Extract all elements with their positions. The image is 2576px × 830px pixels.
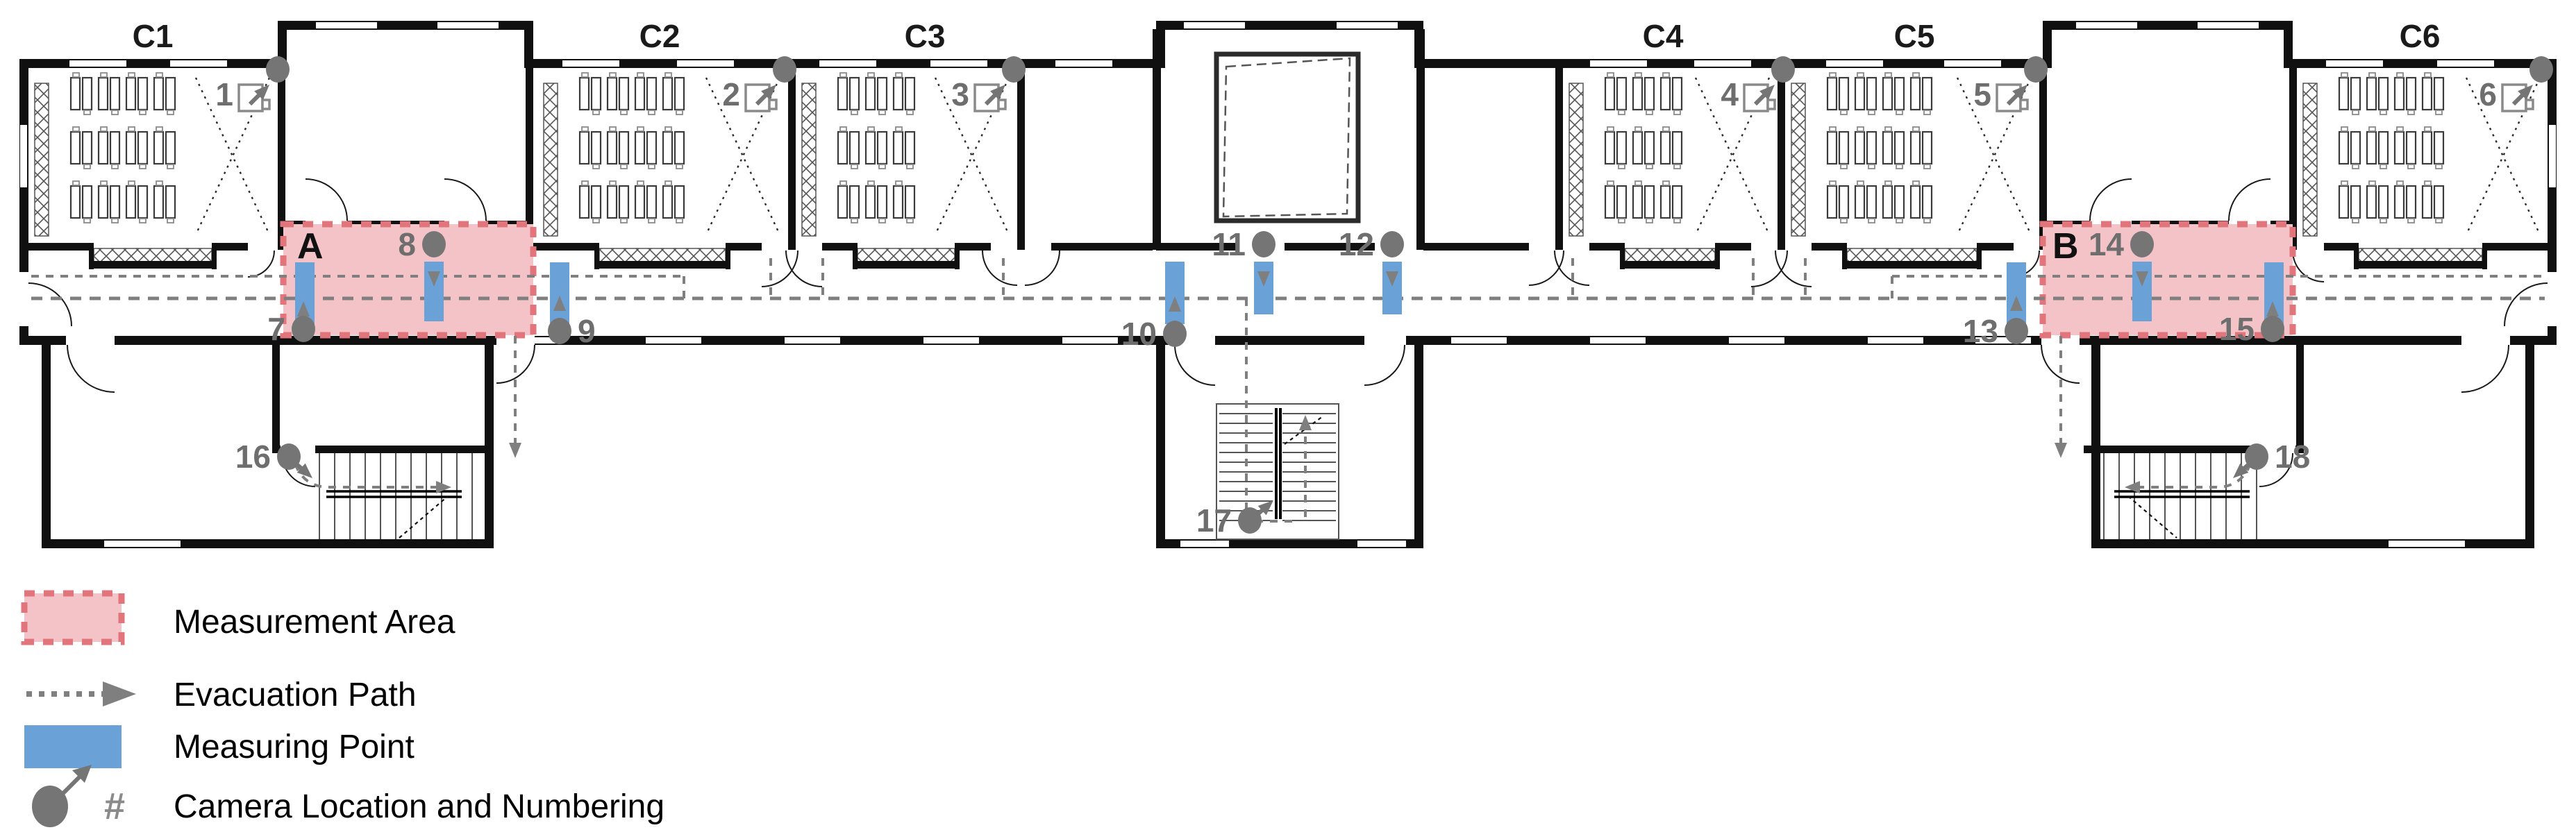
wall-segment xyxy=(1842,243,1847,269)
window xyxy=(19,272,28,326)
desk xyxy=(71,127,92,169)
desk xyxy=(2423,127,2443,169)
window xyxy=(1451,337,1507,344)
camera-location-icon xyxy=(2130,231,2154,257)
wall-segment xyxy=(89,243,94,269)
window xyxy=(1184,22,1245,28)
wall-segment xyxy=(485,336,494,548)
wall-segment xyxy=(1778,59,1785,250)
wall-segment xyxy=(1423,243,1529,251)
window xyxy=(1062,337,1118,344)
desk xyxy=(2395,127,2416,169)
wall-segment xyxy=(726,243,762,251)
wall-segment xyxy=(2359,248,2482,262)
desk xyxy=(126,73,147,115)
wall-segment xyxy=(1051,243,1153,251)
desk xyxy=(2339,73,2360,115)
desk xyxy=(1633,181,1654,223)
wall-segment xyxy=(1555,59,1563,250)
camera-marker-11: 11 xyxy=(1212,226,1276,314)
measurement-area-b xyxy=(2043,224,2293,335)
camera-location-icon xyxy=(266,56,290,83)
camera-location-icon xyxy=(1002,56,1026,83)
desk xyxy=(608,127,628,169)
exit-sign-tab-icon xyxy=(769,100,776,109)
desk xyxy=(154,181,175,223)
wall-segment xyxy=(2091,539,2534,548)
door-arc xyxy=(1175,345,1215,385)
wall-segment xyxy=(2296,345,2304,449)
window xyxy=(1590,337,1646,344)
camera-number: 9 xyxy=(578,313,596,349)
wall-segment xyxy=(2525,336,2534,548)
wall-segment xyxy=(594,243,599,269)
wall-segment xyxy=(19,243,94,251)
desk xyxy=(126,127,147,169)
wall-segment xyxy=(853,243,858,269)
window xyxy=(2548,272,2557,326)
wall-segment xyxy=(858,261,955,269)
legend-camera-location-label: Camera Location and Numbering xyxy=(174,788,664,825)
wall-segment xyxy=(1791,83,1805,236)
camera-number: 3 xyxy=(951,76,969,112)
door-arc xyxy=(2229,179,2270,221)
classroom-label-c5: C5 xyxy=(1894,18,1935,54)
wall-segment xyxy=(2354,243,2359,269)
desk xyxy=(1883,127,1904,169)
line xyxy=(2128,496,2177,538)
door-arc xyxy=(982,251,1017,285)
desk xyxy=(1855,181,1876,223)
wall-segment xyxy=(1847,261,1977,269)
desk xyxy=(71,73,92,115)
wall-segment xyxy=(1156,336,1165,548)
generated-plan-geometry: 123456789101112131415161718 xyxy=(19,21,2557,548)
desk xyxy=(1605,127,1626,169)
camera-location-icon xyxy=(2024,56,2048,83)
camera-location-icon xyxy=(548,318,571,344)
door-arc xyxy=(2090,179,2132,221)
wall-segment xyxy=(1812,243,1847,251)
desk xyxy=(608,73,628,115)
desk xyxy=(894,73,914,115)
wall-segment xyxy=(1414,336,1423,548)
wall-segment xyxy=(35,83,49,236)
wall-segment xyxy=(2091,336,2100,548)
desk xyxy=(1605,73,1626,115)
camera-location-icon xyxy=(2261,316,2284,342)
wall-segment xyxy=(822,243,858,251)
wall-segment xyxy=(599,261,726,269)
desk xyxy=(126,181,147,223)
wall-segment xyxy=(1977,243,2014,251)
desk xyxy=(71,181,92,223)
window xyxy=(2198,22,2259,28)
camera-location-icon xyxy=(2529,56,2553,83)
camera-number: 14 xyxy=(2089,226,2125,262)
desk xyxy=(99,73,119,115)
camera-number: 11 xyxy=(1212,226,1246,262)
wall-segment xyxy=(1569,83,1583,236)
measuring-point-bar xyxy=(550,262,569,323)
wall-segment xyxy=(1017,59,1025,250)
window xyxy=(1337,22,1398,28)
window xyxy=(562,60,619,67)
window xyxy=(1868,337,1923,344)
window xyxy=(69,60,126,67)
wall-segment xyxy=(2359,261,2482,269)
desk xyxy=(580,127,601,169)
wall-segment xyxy=(955,243,991,251)
camera-number: 6 xyxy=(2479,76,2497,112)
desk xyxy=(99,181,119,223)
window xyxy=(2461,336,2510,345)
camera-marker-12: 12 xyxy=(1339,226,1404,314)
area-label-a: A xyxy=(297,226,324,266)
door-arc xyxy=(762,251,798,287)
classroom-label-c4: C4 xyxy=(1643,18,1684,54)
desk xyxy=(1911,127,1932,169)
camera-location-icon xyxy=(1252,231,1276,257)
wall-segment xyxy=(212,243,248,251)
door-arc xyxy=(1025,251,1060,285)
desk xyxy=(1661,73,1682,115)
window xyxy=(2437,60,2494,67)
camera-location-icon xyxy=(1771,56,1795,83)
wall-segment xyxy=(42,336,51,548)
desk xyxy=(154,127,175,169)
door-arc xyxy=(1364,345,1405,385)
window xyxy=(1055,60,1112,67)
desk xyxy=(1633,127,1654,169)
door-arc xyxy=(786,251,822,287)
camera-number: 12 xyxy=(1339,226,1374,262)
camera-number: 7 xyxy=(267,311,285,347)
desk xyxy=(1828,181,1848,223)
camera-marker-18: 18 xyxy=(2233,439,2310,478)
window xyxy=(2549,125,2556,187)
classroom-label-c2: C2 xyxy=(639,18,680,54)
measuring-point-bar xyxy=(1165,262,1185,324)
camera-location-icon xyxy=(1163,321,1187,347)
camera-number: 18 xyxy=(2275,439,2310,475)
desk xyxy=(838,73,859,115)
wall-segment xyxy=(1416,29,1425,250)
wall-segment xyxy=(1625,261,1715,269)
wall-segment xyxy=(788,59,796,250)
desk xyxy=(99,127,119,169)
desk xyxy=(866,181,887,223)
door-arc xyxy=(28,283,72,326)
desk xyxy=(2339,181,2360,223)
wall-segment xyxy=(94,261,212,269)
floor-plan-svg: 123456789101112131415161718 C1 C2 C3 C4 … xyxy=(0,0,2576,830)
wall-segment xyxy=(1275,408,1278,519)
door-arc xyxy=(306,179,347,221)
desk xyxy=(1911,181,1932,223)
wall-segment xyxy=(533,243,599,251)
measuring-point-bar xyxy=(1254,262,1273,314)
desk xyxy=(2339,127,2360,169)
window xyxy=(437,22,499,28)
window xyxy=(2389,541,2465,547)
window xyxy=(104,541,181,547)
wall-segment xyxy=(1620,243,1625,269)
desk xyxy=(663,73,684,115)
wall-segment xyxy=(19,59,286,68)
exit-sign-tab-icon xyxy=(262,100,269,109)
camera-location-icon xyxy=(422,231,446,257)
desk xyxy=(635,181,656,223)
desk xyxy=(2367,181,2388,223)
legend-measurement-area-swatch xyxy=(24,593,122,642)
camera-location-icon xyxy=(2245,443,2268,470)
arrowhead-icon xyxy=(2055,443,2067,458)
wall-segment xyxy=(1847,248,1977,262)
desk xyxy=(838,127,859,169)
legend-measuring-point-swatch xyxy=(24,725,122,768)
desk xyxy=(608,181,628,223)
window xyxy=(1357,541,1406,547)
desk xyxy=(580,181,601,223)
exit-sign-tab-icon xyxy=(2021,100,2027,109)
desk xyxy=(2423,73,2443,115)
window xyxy=(2076,22,2137,28)
window xyxy=(923,337,979,344)
door-arc xyxy=(67,345,115,392)
window xyxy=(1694,60,1751,67)
desk xyxy=(1855,127,1876,169)
camera-number: 16 xyxy=(235,439,271,475)
measuring-point-bar xyxy=(2132,262,2152,321)
measuring-point-bar xyxy=(2007,262,2026,323)
desk xyxy=(580,73,601,115)
door-arc xyxy=(444,179,486,221)
exit-sign-tab-icon xyxy=(998,100,1005,109)
camera-number: 8 xyxy=(398,226,416,262)
legend-measuring-point-label: Measuring Point xyxy=(174,729,415,765)
desk xyxy=(1633,73,1654,115)
camera-location-icon xyxy=(292,316,315,342)
desk xyxy=(1883,73,1904,115)
wall-segment xyxy=(858,248,955,262)
window xyxy=(2326,60,2383,67)
camera-marker-10: 10 xyxy=(1121,262,1187,352)
window xyxy=(1729,337,1784,344)
window xyxy=(20,125,27,187)
legend-evacuation-path-label: Evacuation Path xyxy=(174,677,417,713)
wall-segment xyxy=(2324,243,2359,251)
window xyxy=(170,60,227,67)
camera-location-icon xyxy=(1238,507,1262,534)
camera-marker-17: 17 xyxy=(1196,500,1273,539)
wall-segment xyxy=(1589,243,1625,251)
desk xyxy=(1855,73,1876,115)
classroom-label-c3: C3 xyxy=(905,18,946,54)
camera-number: 17 xyxy=(1196,502,1232,539)
wall-segment xyxy=(94,248,212,262)
desk xyxy=(2367,127,2388,169)
window xyxy=(1826,60,1883,67)
wall-segment xyxy=(2482,243,2557,251)
desk xyxy=(1661,127,1682,169)
desk xyxy=(635,127,656,169)
desk xyxy=(635,73,656,115)
door-arc xyxy=(1775,251,1812,287)
desk xyxy=(2395,73,2416,115)
desk xyxy=(838,181,859,223)
camera-number: 5 xyxy=(1973,76,1991,112)
exit-sign-tab-icon xyxy=(1768,100,1775,109)
classroom-label-c1: C1 xyxy=(133,18,174,54)
wall-segment xyxy=(1715,243,1751,251)
camera-number: 13 xyxy=(1963,313,1998,349)
window xyxy=(1364,336,1406,345)
window xyxy=(316,22,377,28)
camera-number: 2 xyxy=(722,76,740,112)
camera-number: 10 xyxy=(1121,316,1157,352)
window xyxy=(646,337,701,344)
desk xyxy=(1828,73,1848,115)
desk xyxy=(663,181,684,223)
desk xyxy=(2367,73,2388,115)
measuring-point-bar xyxy=(424,262,444,321)
line xyxy=(399,496,448,538)
desk xyxy=(894,181,914,223)
window xyxy=(1180,541,1229,547)
desk xyxy=(1605,181,1626,223)
wall-segment xyxy=(1279,408,1282,519)
window xyxy=(1590,60,1647,67)
window xyxy=(930,60,987,67)
wall-segment xyxy=(272,345,280,449)
desk xyxy=(894,127,914,169)
door-arc xyxy=(2461,345,2509,392)
arrowhead-icon xyxy=(509,443,521,458)
wall-segment xyxy=(599,248,726,262)
floor-plan-page: 123456789101112131415161718 C1 C2 C3 C4 … xyxy=(0,0,2576,830)
desk xyxy=(2395,181,2416,223)
camera-location-icon xyxy=(773,56,796,83)
wall-segment xyxy=(802,83,816,236)
desk xyxy=(154,73,175,115)
window xyxy=(66,336,115,345)
desk xyxy=(1661,181,1682,223)
desk xyxy=(2423,181,2443,223)
door-arc xyxy=(248,251,274,277)
area-label-b: B xyxy=(2052,226,2079,266)
desk xyxy=(1828,127,1848,169)
desk xyxy=(1883,181,1904,223)
desk xyxy=(866,127,887,169)
camera-location-icon xyxy=(2005,318,2028,344)
legend-number-symbol: # xyxy=(104,786,125,827)
wall-segment xyxy=(2303,83,2317,236)
desk xyxy=(866,73,887,115)
window xyxy=(1944,60,2001,67)
camera-location-icon xyxy=(1380,231,1404,257)
wall-segment xyxy=(544,83,558,236)
wall-segment xyxy=(1625,248,1715,262)
legend: Measurement Area Evacuation Path Measuri… xyxy=(24,593,664,827)
atrium-void xyxy=(1216,54,1358,221)
legend-evacuation-path-arrow-icon xyxy=(103,681,136,706)
exit-sign-tab-icon xyxy=(2526,100,2533,109)
door-arc xyxy=(2504,283,2548,326)
classroom-label-c6: C6 xyxy=(2400,18,2441,54)
camera-number: 4 xyxy=(1721,76,1739,112)
window xyxy=(819,60,876,67)
camera-number: 15 xyxy=(2219,311,2255,347)
window xyxy=(677,60,734,67)
window xyxy=(785,337,840,344)
legend-measurement-area-label: Measurement Area xyxy=(174,604,455,641)
camera-location-icon xyxy=(277,443,301,470)
desk xyxy=(663,127,684,169)
door-arc xyxy=(1751,251,1787,287)
desk xyxy=(1911,73,1932,115)
wall-segment xyxy=(1153,29,1161,250)
measuring-point-bar xyxy=(1382,262,1402,314)
camera-number: 1 xyxy=(215,76,233,112)
